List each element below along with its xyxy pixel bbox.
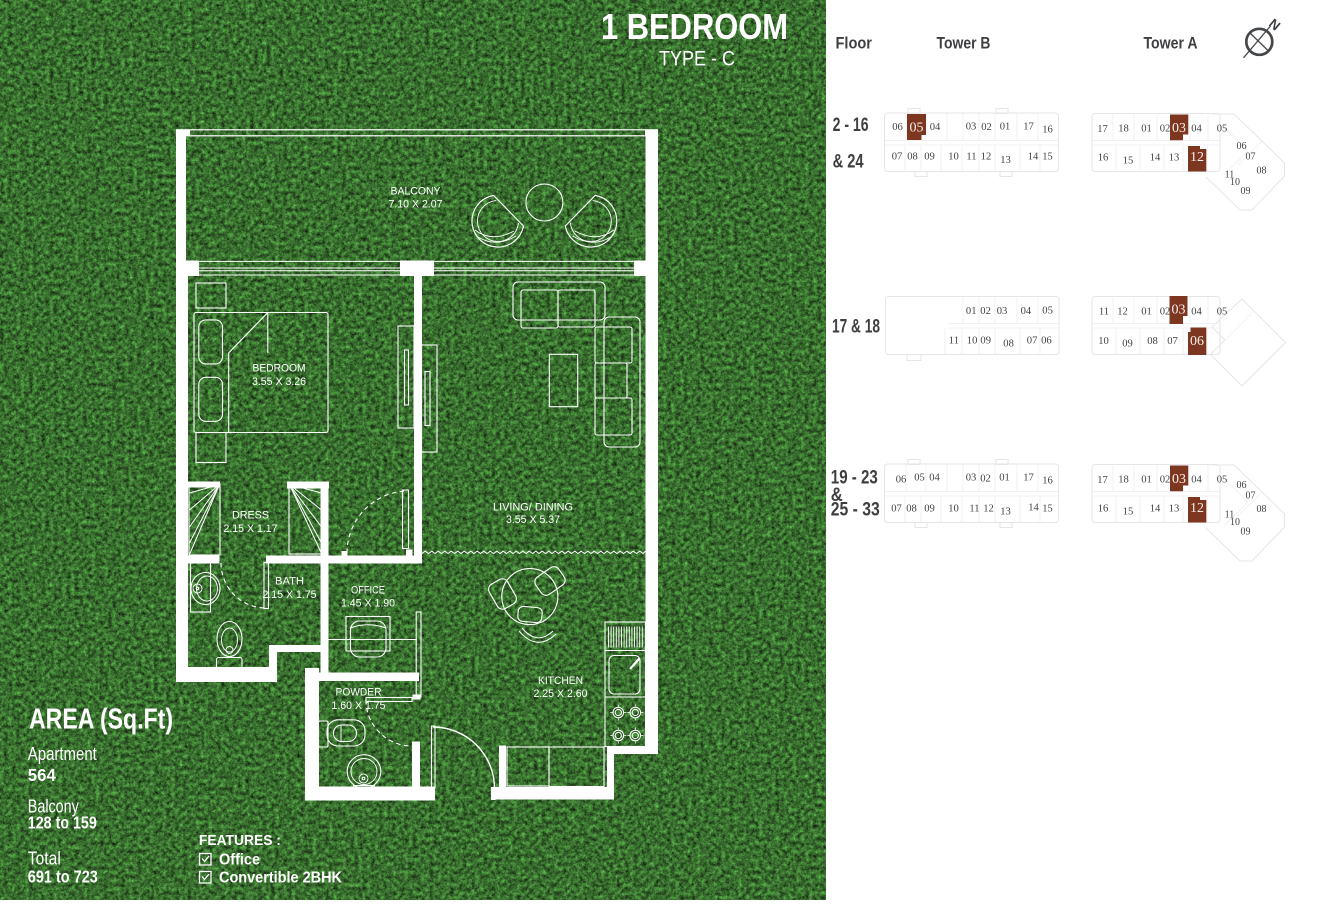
svg-text:03: 03 — [966, 122, 977, 133]
svg-text:14: 14 — [1150, 153, 1161, 164]
svg-text:09: 09 — [980, 336, 991, 347]
svg-text:10: 10 — [1230, 517, 1240, 528]
svg-text:Office: Office — [219, 852, 260, 869]
svg-text:3.55 X 3.26: 3.55 X 3.26 — [252, 376, 306, 388]
svg-text:13: 13 — [1169, 153, 1180, 164]
svg-text:04: 04 — [1021, 306, 1032, 317]
svg-text:09: 09 — [1241, 527, 1251, 538]
svg-text:03: 03 — [966, 473, 977, 484]
svg-text:05: 05 — [1217, 475, 1228, 486]
svg-text:07: 07 — [892, 152, 903, 163]
svg-text:BATH: BATH — [275, 576, 304, 588]
svg-text:12: 12 — [1190, 501, 1204, 516]
svg-text:03: 03 — [1172, 303, 1186, 318]
svg-text:11: 11 — [969, 504, 979, 515]
svg-text:DRESS: DRESS — [232, 510, 269, 522]
svg-text:Tower B: Tower B — [937, 34, 991, 53]
svg-text:12: 12 — [983, 504, 994, 515]
svg-text:01: 01 — [1141, 124, 1152, 135]
svg-text:17 & 18: 17 & 18 — [832, 317, 880, 338]
svg-text:14: 14 — [1028, 503, 1039, 514]
svg-text:1.45 X 1.90: 1.45 X 1.90 — [341, 598, 395, 610]
svg-text:03: 03 — [997, 306, 1008, 317]
svg-text:02: 02 — [1160, 475, 1171, 486]
svg-text:15: 15 — [1042, 504, 1053, 515]
svg-text:07: 07 — [1027, 336, 1038, 347]
svg-text:05: 05 — [1042, 306, 1053, 317]
svg-text:05: 05 — [914, 473, 925, 484]
svg-text:09: 09 — [1122, 339, 1133, 350]
svg-text:AREA (Sq.Ft): AREA (Sq.Ft) — [29, 704, 173, 736]
svg-text:02: 02 — [1160, 307, 1171, 318]
svg-text:1.60 X 1.75: 1.60 X 1.75 — [332, 700, 386, 712]
svg-text:564: 564 — [28, 765, 56, 785]
svg-text:07: 07 — [1167, 336, 1178, 347]
svg-text:02: 02 — [980, 474, 991, 485]
svg-text:08: 08 — [1257, 166, 1267, 177]
svg-text:06: 06 — [1190, 334, 1204, 349]
svg-text:10: 10 — [948, 504, 959, 515]
svg-text:16: 16 — [1042, 476, 1053, 487]
svg-text:2.15 X 1.17: 2.15 X 1.17 — [224, 523, 278, 535]
svg-text:11: 11 — [1099, 307, 1109, 318]
svg-text:06: 06 — [1237, 480, 1247, 491]
svg-text:LIVING/ DINING: LIVING/ DINING — [493, 501, 573, 513]
svg-text:11: 11 — [949, 336, 959, 347]
svg-text:01: 01 — [1141, 307, 1152, 318]
svg-text:12: 12 — [1190, 150, 1204, 165]
svg-text:12: 12 — [981, 152, 992, 163]
svg-text:04: 04 — [930, 122, 941, 133]
svg-text:FEATURES :: FEATURES : — [199, 832, 281, 849]
svg-text:01: 01 — [1000, 122, 1011, 133]
svg-text:13: 13 — [1000, 507, 1011, 518]
svg-text:08: 08 — [906, 504, 917, 515]
svg-text:07: 07 — [1246, 491, 1256, 502]
svg-text:128 to 159: 128 to 159 — [28, 813, 97, 833]
svg-text:Convertible 2BHK: Convertible 2BHK — [219, 870, 342, 887]
svg-text:17: 17 — [1097, 124, 1108, 135]
svg-text:04: 04 — [1191, 475, 1202, 486]
svg-text:09: 09 — [924, 152, 935, 163]
svg-text:14: 14 — [1028, 152, 1039, 163]
svg-text:16: 16 — [1098, 153, 1109, 164]
svg-text:18: 18 — [1118, 475, 1129, 486]
svg-text:25 - 33: 25 - 33 — [831, 499, 880, 520]
svg-text:05: 05 — [1217, 307, 1228, 318]
svg-text:10: 10 — [1098, 336, 1109, 347]
svg-text:Floor: Floor — [836, 34, 873, 53]
svg-text:04: 04 — [1191, 307, 1202, 318]
svg-text:14: 14 — [1150, 504, 1161, 515]
svg-text:05: 05 — [910, 121, 924, 136]
svg-text:16: 16 — [1098, 504, 1109, 515]
svg-text:7.10 X 2.07: 7.10 X 2.07 — [389, 199, 443, 211]
svg-text:TYPE - C: TYPE - C — [659, 48, 735, 71]
svg-text:03: 03 — [1172, 121, 1186, 136]
svg-text:08: 08 — [1147, 336, 1158, 347]
svg-text:03: 03 — [1172, 472, 1186, 487]
svg-text:17: 17 — [1023, 473, 1034, 484]
svg-text:06: 06 — [896, 475, 907, 486]
svg-text:08: 08 — [907, 152, 918, 163]
svg-text:17: 17 — [1097, 475, 1108, 486]
svg-text:13: 13 — [1000, 155, 1011, 166]
svg-text:2.25 X 2.60: 2.25 X 2.60 — [534, 688, 588, 700]
svg-text:16: 16 — [1042, 125, 1053, 136]
svg-text:10: 10 — [948, 152, 959, 163]
svg-text:3.55 X 5.37: 3.55 X 5.37 — [506, 514, 560, 526]
svg-text:02: 02 — [1160, 124, 1171, 135]
svg-text:08: 08 — [1003, 339, 1014, 350]
svg-text:09: 09 — [924, 504, 935, 515]
svg-text:12: 12 — [1117, 307, 1128, 318]
svg-text:Tower A: Tower A — [1144, 34, 1198, 53]
svg-text:01: 01 — [999, 473, 1010, 484]
svg-text:Apartment: Apartment — [28, 744, 97, 764]
svg-text:15: 15 — [1123, 156, 1134, 167]
svg-text:07: 07 — [891, 504, 902, 515]
svg-text:Total: Total — [28, 849, 61, 869]
svg-text:10: 10 — [967, 336, 978, 347]
svg-text:06: 06 — [1237, 141, 1247, 152]
svg-text:02: 02 — [981, 122, 992, 133]
svg-text:11: 11 — [966, 152, 976, 163]
svg-text:04: 04 — [929, 473, 940, 484]
svg-text:04: 04 — [1191, 124, 1202, 135]
svg-text:15: 15 — [1042, 152, 1053, 163]
svg-text:691 to 723: 691 to 723 — [28, 867, 98, 887]
svg-text:05: 05 — [1217, 124, 1228, 135]
svg-text:OFFICE: OFFICE — [351, 584, 385, 596]
svg-text:13: 13 — [1169, 504, 1180, 515]
svg-text:1 BEDROOM: 1 BEDROOM — [601, 6, 788, 47]
svg-text:BALCONY: BALCONY — [391, 186, 442, 198]
svg-text:10: 10 — [1230, 177, 1240, 188]
svg-text:2.15 X 1.75: 2.15 X 1.75 — [263, 589, 317, 601]
svg-text:09: 09 — [1241, 186, 1251, 197]
svg-text:18: 18 — [1118, 124, 1129, 135]
svg-text:01: 01 — [1141, 475, 1152, 486]
svg-text:KITCHEN: KITCHEN — [538, 675, 583, 687]
svg-text:& 24: & 24 — [833, 152, 864, 173]
svg-text:2 - 16: 2 - 16 — [833, 115, 869, 136]
svg-text:08: 08 — [1257, 504, 1267, 515]
svg-text:01: 01 — [966, 306, 977, 317]
svg-text:06: 06 — [892, 122, 903, 133]
svg-text:02: 02 — [980, 306, 991, 317]
svg-text:07: 07 — [1246, 152, 1256, 163]
svg-text:POWDER: POWDER — [336, 686, 382, 698]
svg-text:17: 17 — [1023, 122, 1034, 133]
svg-text:15: 15 — [1123, 507, 1134, 518]
svg-text:BEDROOM: BEDROOM — [253, 363, 306, 375]
svg-text:06: 06 — [1041, 336, 1052, 347]
